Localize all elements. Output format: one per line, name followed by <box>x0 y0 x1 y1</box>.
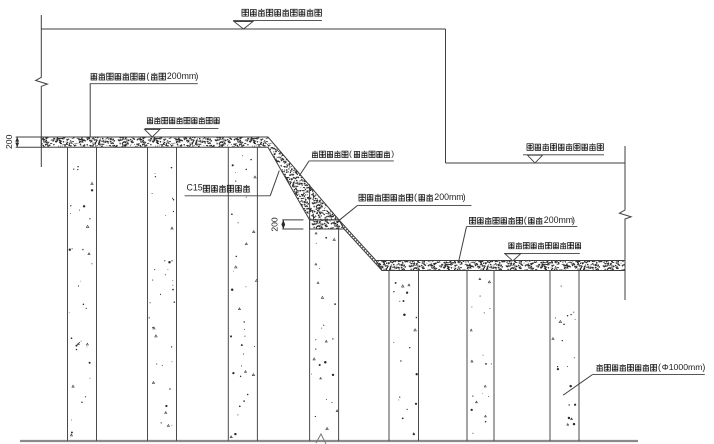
svg-text:): ) <box>391 149 394 159</box>
svg-text:200: 200 <box>4 134 14 149</box>
svg-text:): ) <box>702 362 705 372</box>
svg-text:Φ1000mm: Φ1000mm <box>662 362 703 372</box>
svg-text:200mm: 200mm <box>434 192 463 202</box>
svg-text:): ) <box>195 71 198 81</box>
svg-text:): ) <box>463 192 466 202</box>
svg-text:(: ( <box>658 362 661 372</box>
svg-text:200: 200 <box>270 217 280 232</box>
svg-text:(: ( <box>414 192 417 202</box>
svg-text:C15: C15 <box>187 183 203 193</box>
svg-text:(: ( <box>146 71 149 81</box>
svg-text:200mm: 200mm <box>544 215 573 225</box>
svg-text:(: ( <box>349 149 352 159</box>
svg-text:200mm: 200mm <box>167 71 196 81</box>
svg-text:(: ( <box>524 215 527 225</box>
svg-text:): ) <box>572 215 575 225</box>
